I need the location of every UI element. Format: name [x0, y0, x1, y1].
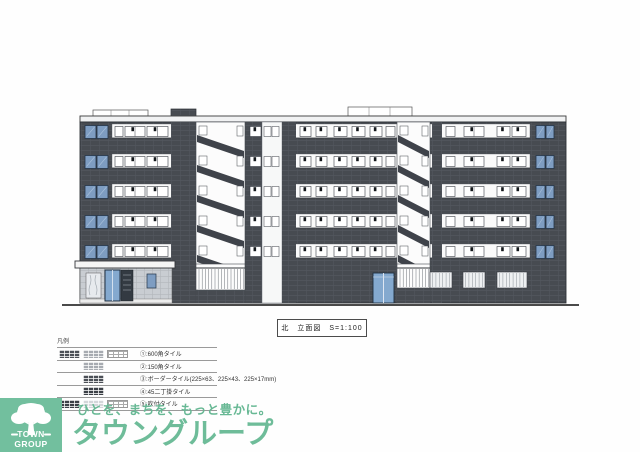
town-group-wordmark: TOWN GROUP	[0, 429, 62, 449]
legend-row: ④:45二丁掛タイル	[57, 386, 217, 399]
legend-title: 凡例	[57, 336, 217, 345]
drawing-title: 北 立面図	[281, 323, 321, 333]
legend-entry-label: ①:600角タイル	[135, 349, 182, 358]
drawing-scale: S=1:100	[329, 325, 362, 332]
tile-swatch-darker	[83, 387, 104, 395]
roof-and-parapet	[80, 107, 566, 122]
legend-row: ②:150角タイル	[57, 361, 217, 374]
town-group-logo: TOWN GROUP	[0, 398, 62, 452]
tile-swatch-dark	[83, 375, 104, 383]
legend-row: ①:600角タイル	[57, 348, 217, 361]
legend-entry-label: ③:ボーダータイル(225×63、225×43、225×17mm)	[135, 374, 276, 383]
entrance	[75, 261, 175, 303]
drawing-title-box: 北 立面図 S=1:100	[277, 319, 367, 337]
logo-brand-name: タウングループ	[72, 410, 273, 452]
legend-entry-label: ④:45二丁掛タイル	[135, 387, 190, 396]
legend-entry-label: ②:150角タイル	[135, 362, 182, 371]
tile-swatch-dark	[59, 350, 80, 358]
legend-row: ③:ボーダータイル(225×63、225×43、225×17mm)	[57, 373, 217, 386]
tile-swatch-white-grid	[107, 350, 128, 358]
scanned-elevation-page: 北 立面図 S=1:100 凡例 ①:600角タイル ②:150角タイル	[0, 0, 640, 452]
tile-swatch-medium	[83, 350, 104, 358]
tile-swatch-medium	[83, 362, 104, 370]
